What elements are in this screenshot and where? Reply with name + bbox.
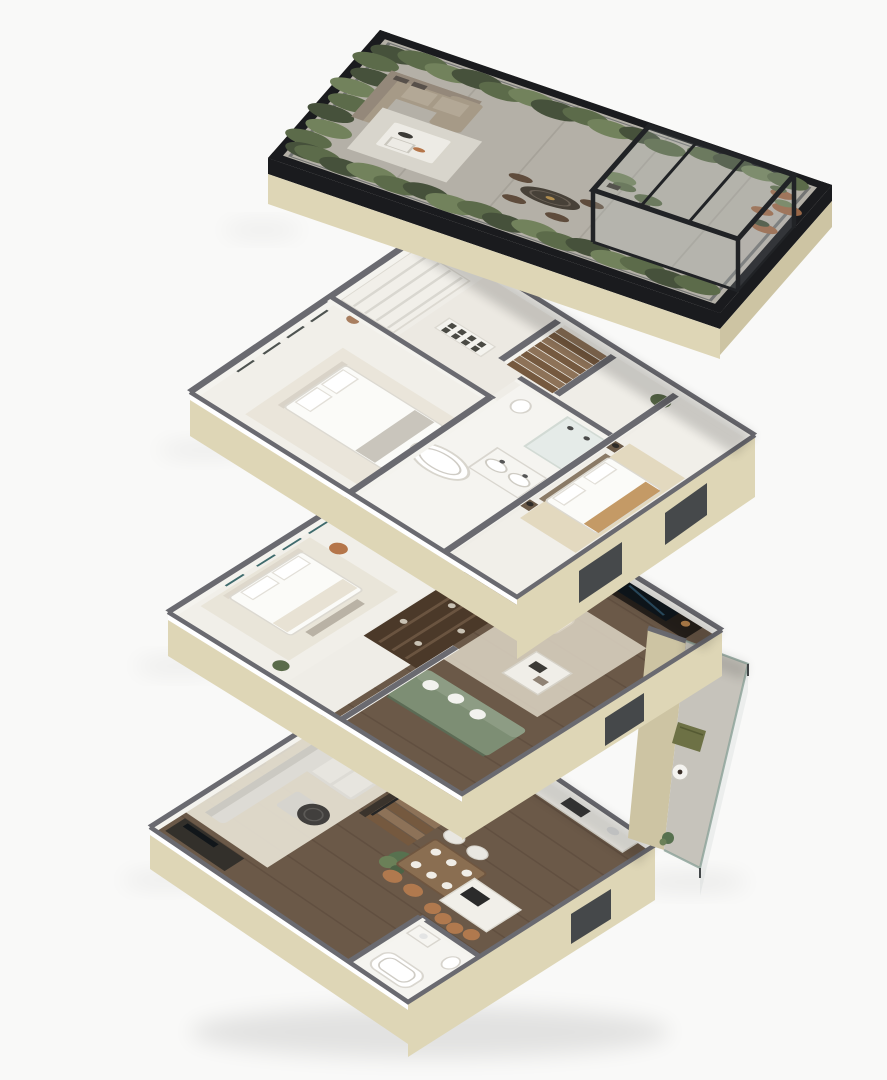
exploded-floorplan-svg [0,0,887,1080]
floorplan-render [0,0,887,1080]
coffee-cup [678,770,683,775]
